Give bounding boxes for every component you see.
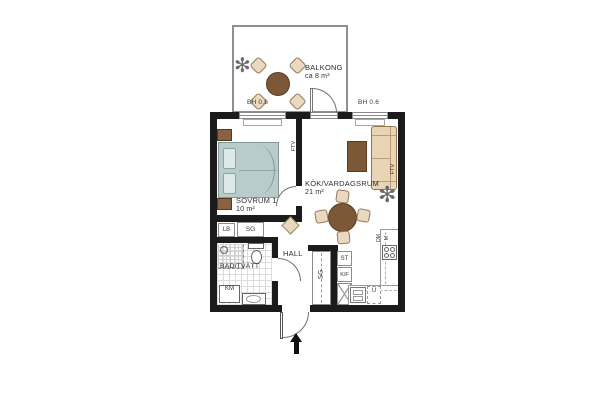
bedroom-label: SOVRUM 1: [236, 196, 277, 205]
bathroom-label: BAD/TVÄTT: [220, 263, 259, 270]
dining-chair: [335, 189, 350, 204]
wall: [272, 237, 278, 258]
bedroom-window-sill: [243, 119, 282, 126]
cleaning-cabinet-label: ST: [337, 251, 352, 266]
dining-chair: [356, 208, 371, 223]
dining-chair: [314, 209, 329, 224]
sofa-cushion-line: [372, 158, 390, 159]
wall: [210, 305, 282, 312]
microwave-label: M: [384, 230, 390, 246]
coffee-table: [347, 141, 367, 172]
wall: [272, 281, 278, 305]
balcony-area: ca 8 m²: [305, 73, 330, 80]
bedroom-door-swing: [276, 186, 296, 206]
wall: [286, 112, 310, 119]
floor-plan: ✻ BALKONG ca 8 m² BH 0.6 BH 0.6: [0, 0, 600, 400]
sofa-armrest-line: [372, 135, 396, 136]
dishwasher-label: DM: [376, 230, 382, 246]
burner-icon: [384, 247, 389, 252]
stove: [382, 245, 397, 260]
washing-machine-label: KM: [219, 284, 240, 294]
burner-icon: [390, 253, 395, 258]
balcony-label: BALKONG: [305, 63, 343, 72]
linen-cabinet-label: LB: [218, 223, 235, 237]
ftv-outlet-label: FTV: [390, 157, 396, 181]
hall-wardrobe-label: SG: [237, 222, 264, 237]
living-window: [352, 112, 388, 119]
wall: [210, 112, 217, 312]
dining-chair: [336, 230, 350, 244]
shower-head-icon: [220, 246, 228, 254]
sink-bowl: [353, 296, 363, 301]
wall: [310, 305, 405, 312]
kitchen-wardrobe-label: SG: [318, 260, 325, 290]
bed-center-line: [239, 170, 277, 171]
living-window-sill: [355, 119, 385, 126]
balcony-door: [310, 112, 338, 119]
nightstand: [217, 198, 232, 210]
burner-icon: [384, 253, 389, 258]
sill-height-left: BH 0.6: [247, 99, 268, 106]
bed: [218, 142, 279, 198]
bedroom-window: [239, 112, 286, 119]
oven-label: U: [367, 286, 381, 296]
entrance-arrow-stem: [294, 341, 299, 354]
plant-icon: ✻: [378, 184, 396, 206]
balcony-table: [266, 72, 290, 96]
wall: [338, 112, 352, 119]
dining-table: [328, 203, 357, 232]
washbasin-bowl: [246, 295, 261, 303]
plant-icon: ✻: [234, 56, 251, 76]
kitchen-sink: [350, 287, 366, 303]
fridge-freezer-label: K/F: [337, 267, 352, 282]
sink-bowl: [353, 290, 363, 295]
hall-label: HALL: [283, 249, 303, 258]
toilet-bowl: [251, 250, 262, 264]
ftv-outlet-label: FTV: [291, 134, 297, 158]
bathroom-door-swing: [278, 258, 301, 281]
pillow: [223, 173, 236, 194]
toilet-tank: [248, 243, 264, 249]
nightstand: [217, 129, 232, 141]
sill-height-right: BH 0.6: [358, 99, 379, 106]
bedroom-area: 10 m²: [236, 206, 255, 213]
burner-icon: [390, 247, 395, 252]
living-area: 21 m²: [305, 189, 324, 196]
living-label: KÖK/VARDAGSRUM: [305, 179, 379, 188]
pillow: [223, 148, 236, 169]
wall: [398, 112, 405, 312]
